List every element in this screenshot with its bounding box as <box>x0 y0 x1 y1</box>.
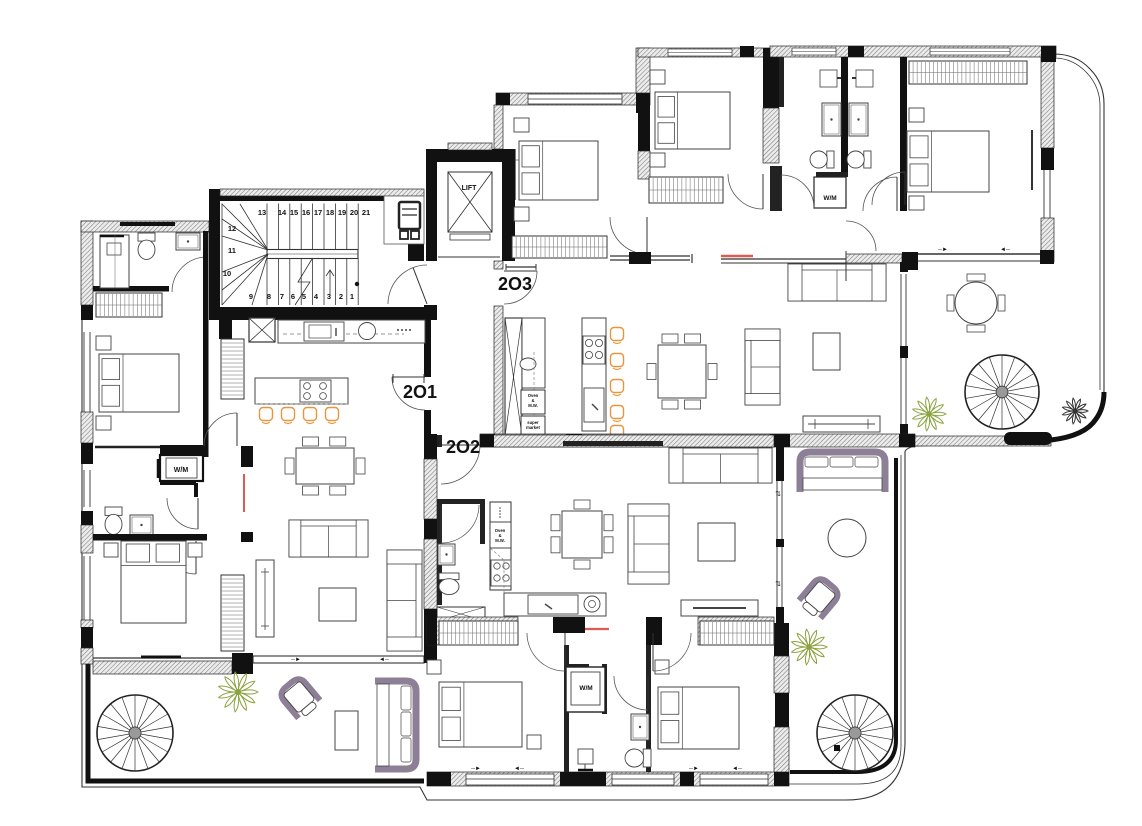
svg-text:--►: --► <box>938 247 948 253</box>
svg-text:11: 11 <box>228 246 236 255</box>
svg-text:1: 1 <box>350 292 354 301</box>
svg-text:2O2: 2O2 <box>446 437 480 457</box>
svg-text:21: 21 <box>362 208 370 217</box>
svg-text:W/M: W/M <box>823 195 836 202</box>
svg-text:--►: --► <box>689 766 699 772</box>
svg-text:M.W.: M.W. <box>495 538 505 543</box>
svg-text:5: 5 <box>302 292 306 301</box>
svg-text:--►: --► <box>291 657 301 663</box>
svg-text:15: 15 <box>290 208 298 217</box>
svg-text:--►: --► <box>471 766 481 772</box>
svg-text:6: 6 <box>291 292 295 301</box>
svg-text:3: 3 <box>327 292 331 301</box>
svg-text:◄--: ◄-- <box>1000 247 1010 253</box>
svg-text:◄--: ◄-- <box>514 766 524 772</box>
svg-text:8: 8 <box>267 292 271 301</box>
svg-text:14: 14 <box>278 208 287 217</box>
svg-text:◄--: ◄-- <box>732 766 742 772</box>
svg-text:W/M: W/M <box>174 467 189 474</box>
svg-text:16: 16 <box>302 208 310 217</box>
svg-text:17: 17 <box>314 208 322 217</box>
svg-text:◄--: ◄-- <box>379 657 389 663</box>
svg-text:⇅: ⇅ <box>775 581 781 588</box>
svg-text:2O1: 2O1 <box>403 382 437 402</box>
svg-text:9: 9 <box>249 292 253 301</box>
svg-text:⇅: ⇅ <box>775 491 781 498</box>
svg-text:2O3: 2O3 <box>498 274 532 294</box>
svg-text:19: 19 <box>338 208 346 217</box>
svg-text:M.W.: M.W. <box>528 403 538 408</box>
svg-text:20: 20 <box>350 208 358 217</box>
svg-text:18: 18 <box>326 208 334 217</box>
svg-text:LIFT: LIFT <box>462 185 477 192</box>
svg-text:13: 13 <box>258 208 266 217</box>
svg-text:market: market <box>526 425 540 430</box>
svg-text:W/M: W/M <box>579 685 592 692</box>
svg-text:2: 2 <box>339 292 343 301</box>
svg-text:7: 7 <box>280 292 284 301</box>
